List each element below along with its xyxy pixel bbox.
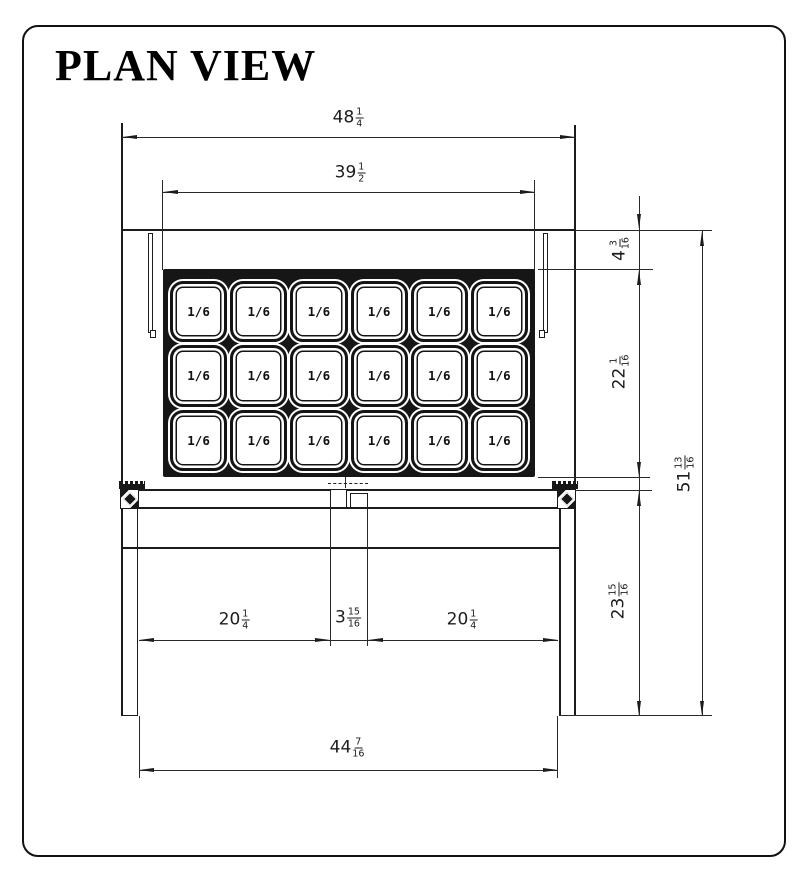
board-rear-edge (122, 547, 560, 549)
body-left-edge (121, 123, 123, 716)
pan-rail-bracket-left (148, 233, 153, 333)
pan: 1/6 (230, 345, 287, 406)
pan-label: 1/6 (247, 304, 270, 319)
drain-center-tick (345, 477, 346, 488)
pan-rail-grid: 1/6 1/6 1/6 1/6 1/6 1/6 1/6 1/6 1/6 1/6 … (163, 269, 535, 477)
hinge-pin-icon (122, 492, 136, 506)
dim-arrow (700, 231, 704, 246)
pan: 1/6 (411, 281, 468, 342)
pan-rail-bracket-right-foot (539, 330, 545, 338)
dimension-line (139, 770, 558, 771)
dimension-line (702, 231, 703, 716)
extension-line (162, 180, 163, 270)
pan-label: 1/6 (428, 368, 451, 383)
dimension-line (163, 192, 535, 193)
pan-label: 1/6 (488, 304, 511, 319)
dim-arrow (163, 190, 178, 194)
hinge-left-body (120, 489, 139, 509)
dim-arrow (543, 768, 558, 772)
pan-label: 1/6 (428, 433, 451, 448)
dim-fraction: 1316 (675, 456, 696, 470)
dim-pan-rail-width: 39 12 (333, 163, 368, 184)
lower-right-inner-edge (559, 489, 561, 716)
dim-arrow (560, 135, 575, 139)
dim-arrow (139, 638, 154, 642)
dim-arrow (637, 462, 641, 477)
dim-whole: 22 (612, 368, 629, 390)
dim-arrow (637, 270, 641, 285)
dim-whole: 20 (219, 612, 241, 629)
dim-fraction: 14 (241, 610, 249, 631)
dim-fraction: 116 (610, 355, 631, 367)
body-right-edge (574, 125, 576, 716)
pan-rail-bracket-right (543, 233, 548, 333)
dim-board-center-width: 3 1516 (333, 608, 363, 629)
dim-arrow (637, 491, 641, 506)
dim-fraction: 12 (357, 163, 365, 184)
pan: 1/6 (411, 410, 468, 471)
pan-label: 1/6 (247, 433, 270, 448)
dim-whole: 20 (447, 612, 469, 629)
dim-whole: 48 (333, 110, 355, 127)
pan: 1/6 (230, 410, 287, 471)
dim-arrow (139, 768, 154, 772)
dimension-line (139, 640, 558, 641)
extension-line (538, 269, 653, 270)
extension-line (538, 477, 650, 478)
dim-arrow (637, 701, 641, 716)
dim-pan-area-depth: 22 116 (610, 353, 631, 392)
pan: 1/6 (170, 345, 227, 406)
pan: 1/6 (471, 281, 528, 342)
pan: 1/6 (230, 281, 287, 342)
lower-left-cap (121, 715, 138, 717)
extension-line (330, 508, 331, 646)
dim-fraction: 716 (352, 738, 364, 759)
pan: 1/6 (351, 345, 408, 406)
dim-arrow (543, 638, 558, 642)
dim-fraction: 316 (610, 237, 631, 249)
lower-left-inner-edge (137, 489, 139, 716)
pan-label: 1/6 (247, 368, 270, 383)
pan-label: 1/6 (187, 433, 210, 448)
extension-line (367, 508, 368, 646)
dim-whole: 51 (677, 471, 694, 493)
dim-whole: 39 (335, 165, 357, 182)
dim-board-depth: 23 1516 (609, 581, 630, 622)
extension-line (534, 180, 535, 270)
pan-label: 1/6 (488, 433, 511, 448)
rail-top-edge (122, 489, 575, 491)
hinge-teeth (120, 481, 144, 484)
extension-line (559, 715, 712, 716)
center-divider-left-tab (330, 489, 347, 508)
pan: 1/6 (290, 410, 347, 471)
pan-label: 1/6 (308, 368, 331, 383)
extension-line (575, 230, 712, 231)
pan: 1/6 (170, 410, 227, 471)
hinge-pin-icon (559, 492, 573, 506)
hinge-left-bar (119, 481, 145, 489)
pan-label: 1/6 (187, 304, 210, 319)
drawing-title: PLAN VIEW (55, 40, 316, 91)
dim-overall-depth: 51 1316 (675, 454, 696, 495)
dim-board-left-width: 20 14 (217, 610, 252, 631)
drain-hidden-line (328, 483, 368, 484)
pan: 1/6 (351, 410, 408, 471)
pan: 1/6 (290, 281, 347, 342)
dim-arrow (520, 190, 535, 194)
pan: 1/6 (471, 410, 528, 471)
dim-arrow (315, 638, 330, 642)
pan-label: 1/6 (488, 368, 511, 383)
pan-rail-bracket-left-foot (150, 330, 156, 338)
dim-bottom-width: 44 716 (328, 738, 367, 759)
dimension-line (122, 137, 575, 138)
dim-rail-depth: 4 316 (610, 235, 631, 263)
hinge-right-bar (552, 481, 578, 489)
dim-fraction: 14 (355, 108, 363, 129)
pan-label: 1/6 (308, 433, 331, 448)
pan-label: 1/6 (368, 304, 391, 319)
dim-fraction: 14 (469, 610, 477, 631)
pan-label: 1/6 (428, 304, 451, 319)
dim-top-width: 48 14 (331, 108, 366, 129)
body-top-edge (122, 229, 575, 231)
dim-arrow (368, 638, 383, 642)
hinge-right-body (557, 489, 576, 509)
dim-board-right-width: 20 14 (445, 610, 480, 631)
pan: 1/6 (170, 281, 227, 342)
center-divider-right-tab (350, 493, 368, 508)
pan-label: 1/6 (368, 368, 391, 383)
pan-label: 1/6 (187, 368, 210, 383)
dim-whole: 4 (612, 250, 629, 261)
pan-label: 1/6 (368, 433, 391, 448)
pan: 1/6 (290, 345, 347, 406)
plan-view-drawing: PLAN VIEW 1/6 1/6 1/6 1/6 1/6 1/6 1/6 1/… (0, 0, 800, 879)
dim-fraction: 1516 (347, 608, 361, 629)
dim-arrow (122, 135, 137, 139)
hinge-teeth (553, 481, 577, 484)
dim-fraction: 1516 (609, 583, 630, 597)
pan-label: 1/6 (308, 304, 331, 319)
pan: 1/6 (411, 345, 468, 406)
dim-arrow (700, 701, 704, 716)
dim-whole: 3 (335, 610, 346, 627)
dim-whole: 44 (330, 740, 352, 757)
dim-whole: 23 (611, 598, 628, 620)
pan: 1/6 (471, 345, 528, 406)
dim-arrow (637, 214, 641, 229)
pan: 1/6 (351, 281, 408, 342)
